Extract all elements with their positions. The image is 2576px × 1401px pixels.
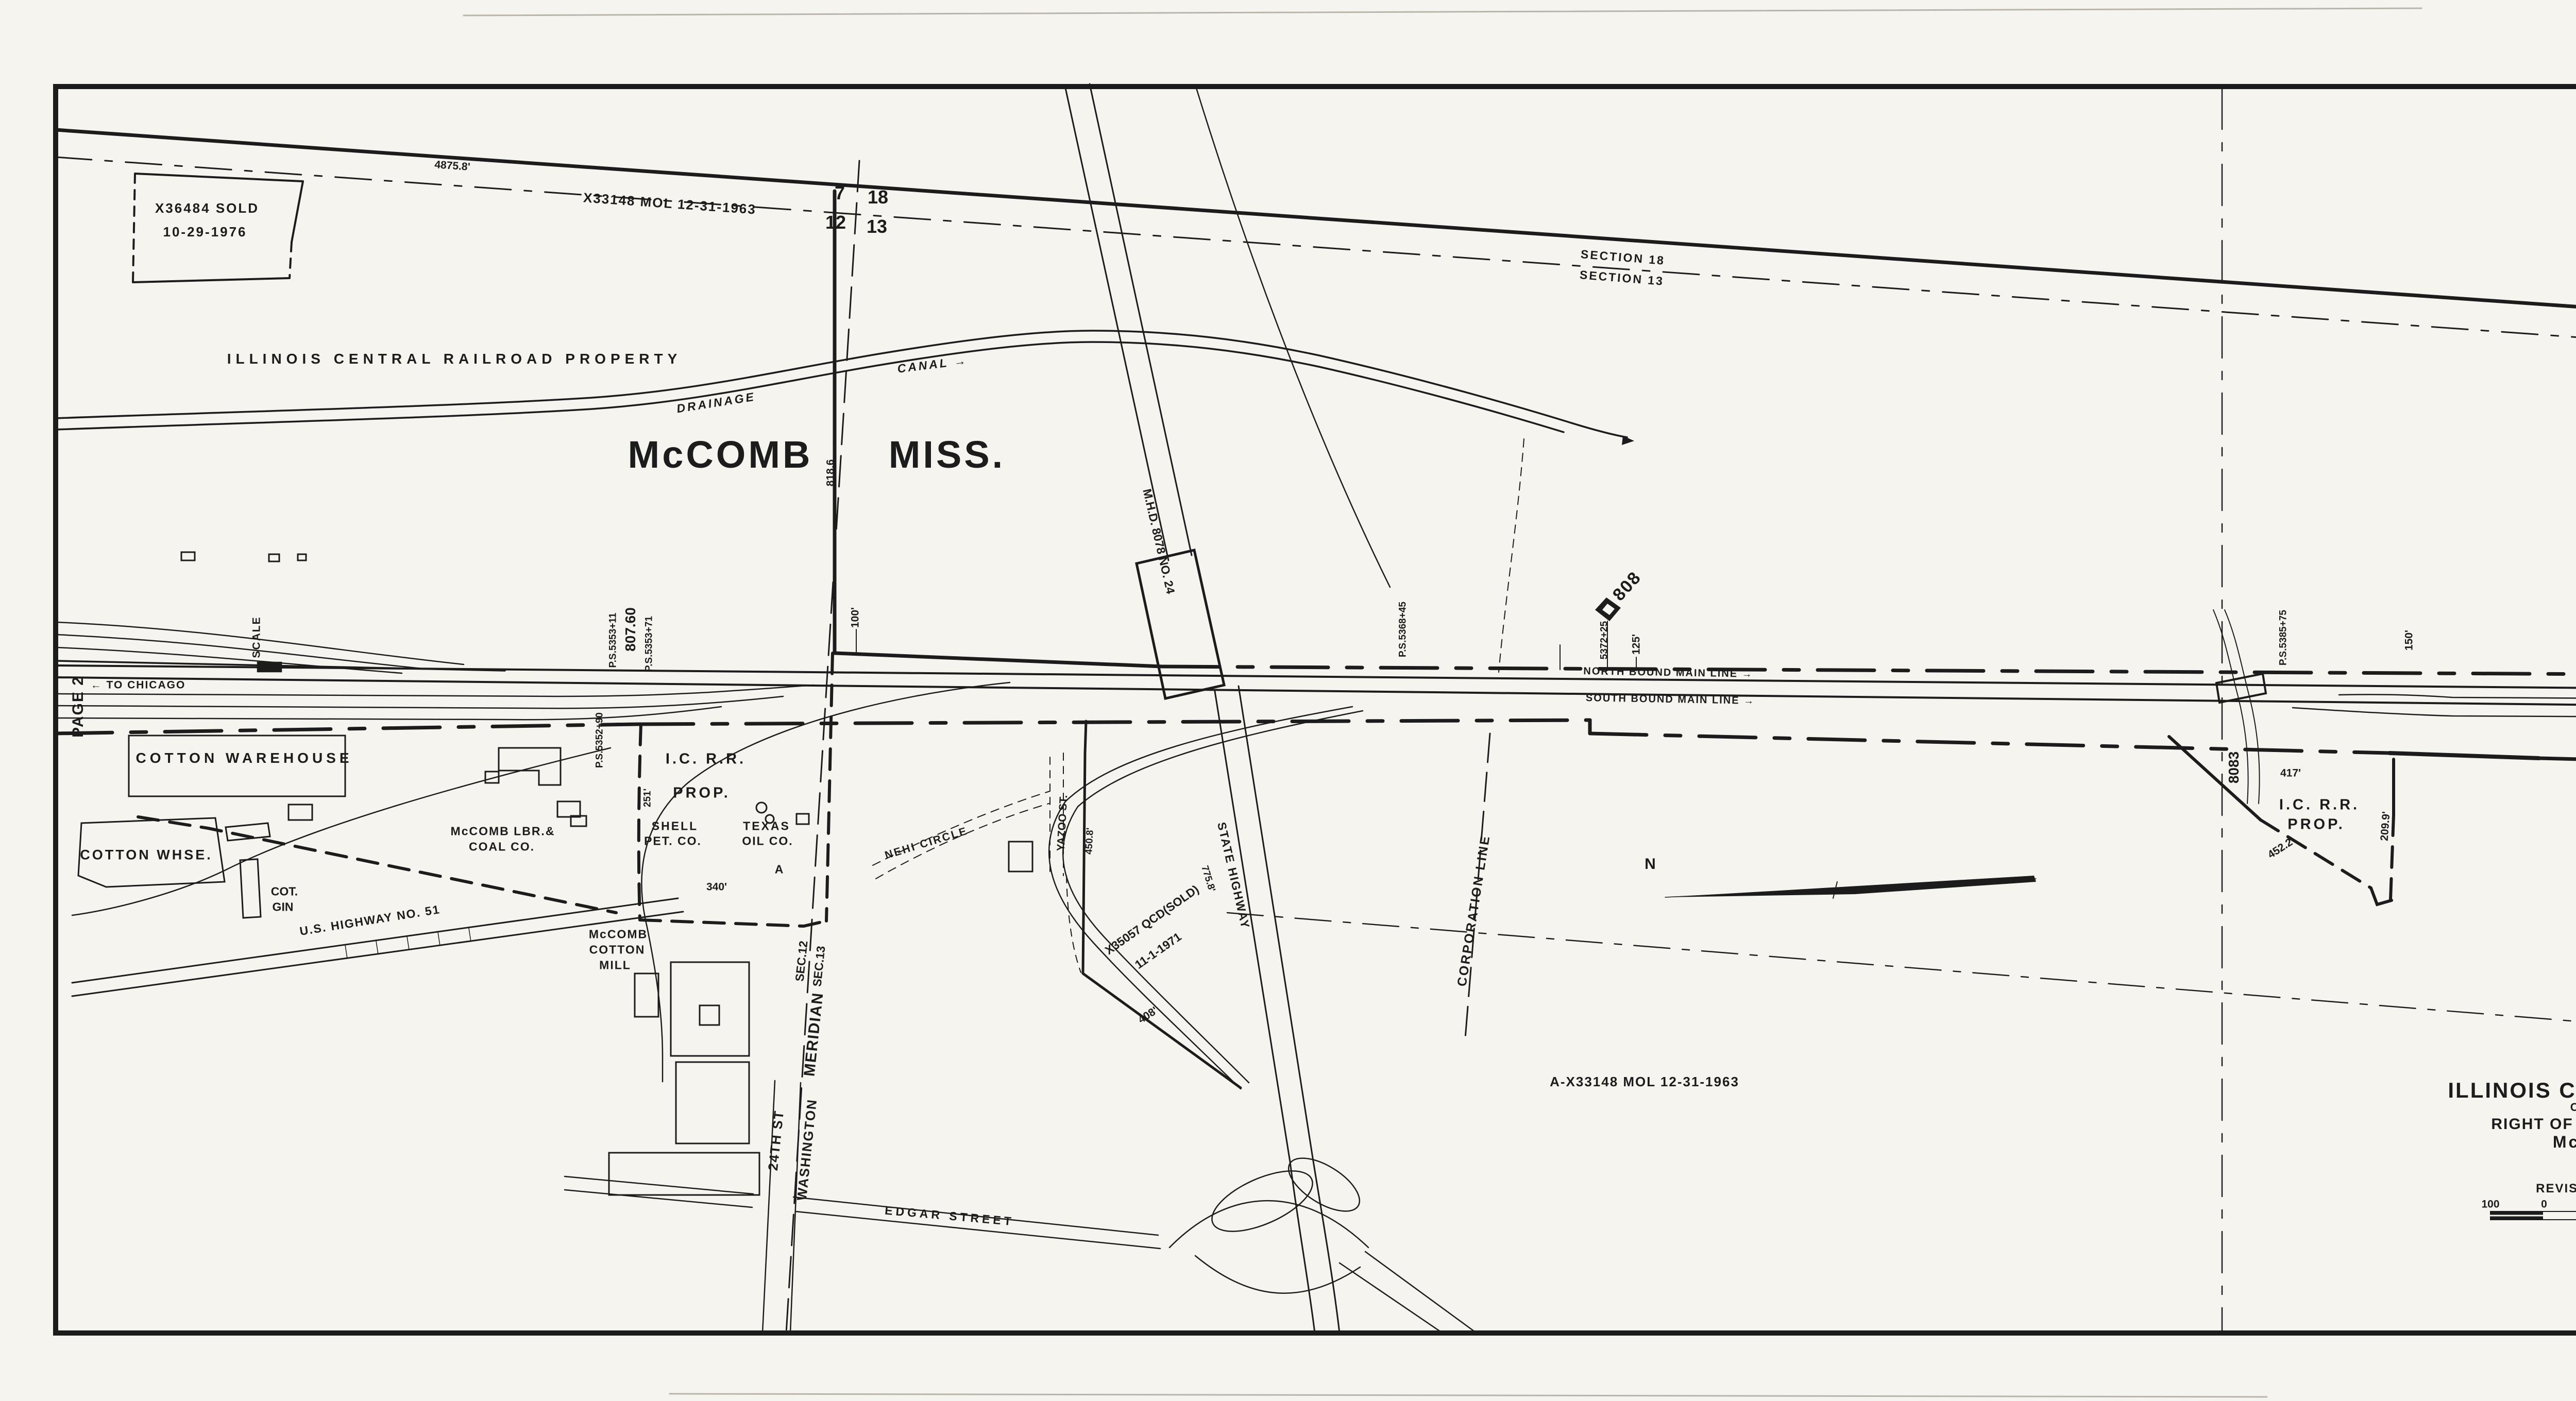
point-a: A xyxy=(775,864,784,876)
dim-125: 125' xyxy=(1631,634,1642,655)
icrr-prop-right-2: PROP. xyxy=(2287,817,2345,832)
mhd-road-label: M.H.D. 8078 NO. 24 xyxy=(1141,488,1176,595)
sec12-label: SEC.12 xyxy=(793,940,809,982)
section-corner-12: 12 xyxy=(825,213,846,232)
parcel-x35057-2: 11-1-1971 xyxy=(1133,931,1183,971)
note-x33148: X33148 MOL 12-31-1963 xyxy=(583,191,756,216)
mccomb-lbr-label-2: COAL CO. xyxy=(469,841,535,853)
section-18-label: SECTION 18 xyxy=(1580,248,1666,267)
mp-8083: 8083 xyxy=(2227,751,2241,783)
label-layer: X36484 SOLD10-29-19764875.8'X33148 MOL 1… xyxy=(0,0,2576,1401)
parcel-x35057-1: X35057 QCD(SOLD) xyxy=(1103,883,1201,957)
cot-gin-label-2: GIN xyxy=(273,901,294,913)
edge-page-2: PAGE 2 xyxy=(71,676,86,738)
icrr-prop-right-1: I.C. R.R. xyxy=(2279,798,2360,813)
dim-4875: 4875.8' xyxy=(434,159,471,173)
dim-4508: 450.8' xyxy=(1084,827,1095,855)
title-city: McCOMB MISS. xyxy=(2553,1134,2576,1150)
cotton-whse-label: COTTON WHSE. xyxy=(80,848,213,862)
street-yazoo: YAZOO ST. xyxy=(1056,795,1070,851)
section-13-label: SECTION 13 xyxy=(1579,269,1665,287)
to-chicago: ← TO CHICAGO xyxy=(91,680,186,691)
section-corner-7: 7 xyxy=(835,184,845,202)
title-row-map: RIGHT OF WAY AND TRACK MAP xyxy=(2491,1117,2576,1132)
dim-4522: 452.2' xyxy=(2266,835,2297,861)
north-letter: N xyxy=(1645,857,1656,872)
north-bound-main: NORTH BOUND MAIN LINE → xyxy=(1583,666,1753,679)
street-24th: 24TH ST xyxy=(766,1109,786,1171)
street-edgar: EDGAR STREET xyxy=(884,1205,1014,1228)
mp-80760: 807.60 xyxy=(623,607,638,652)
cotton-mill-label-3: MILL xyxy=(599,960,631,971)
texas-label-2: OIL CO. xyxy=(742,835,793,847)
dim-7758: 775.8' xyxy=(1199,864,1216,893)
cotton-warehouse-label: COTTON WAREHOUSE xyxy=(135,751,352,765)
cotton-mill-label-1: McCOMB xyxy=(589,929,648,941)
scale-tick-0: 0 xyxy=(2541,1199,2547,1210)
parcel-x36484-line1: X36484 SOLD xyxy=(155,201,259,215)
sta-ps5352-90: P.S.5352+90 xyxy=(595,712,605,768)
city-name: McCOMB xyxy=(628,436,813,474)
sta-ps5353-71: P.S.5353+71 xyxy=(645,616,654,672)
title-railroad: ILLINOIS CENTRAL RAILROAD xyxy=(2448,1080,2576,1101)
sta-ps5368-45: P.S.5368+45 xyxy=(1398,602,1408,657)
drainage-label: DRAINAGE xyxy=(676,391,756,415)
icrr-prop-left-2: PROP. xyxy=(673,786,731,801)
shell-label-1: SHELL xyxy=(652,821,698,832)
texas-label-1: TEXAS xyxy=(743,821,790,832)
state-highway-label: STATE HIGHWAY xyxy=(1215,821,1251,930)
south-bound-main: SOUTH BOUND MAIN LINE → xyxy=(1586,693,1755,706)
note-a-x33148: A-X33148 MOL 12-31-1963 xyxy=(1550,1075,1739,1088)
icrr-prop-left-1: I.C. R.R. xyxy=(666,752,746,767)
meridian-label: MERIDIAN xyxy=(802,992,826,1078)
cot-gin-label-1: COT. xyxy=(271,886,298,898)
dim-408: 408' xyxy=(1136,1005,1159,1025)
nehi-circle-label: NEHI CIRCLE xyxy=(884,826,969,861)
milepost-808: 808 xyxy=(1609,568,1644,604)
track-scale-label: SCALE xyxy=(251,616,262,658)
dim-2099: 209.9' xyxy=(2379,811,2392,842)
shell-label-2: PET. CO. xyxy=(644,835,702,847)
us-highway-51: U.S. HIGHWAY NO. 51 xyxy=(299,903,441,937)
sta-5372-25: 5372+25 xyxy=(1600,621,1609,660)
v-8186: 818.6 xyxy=(825,459,836,487)
icrr-property-note: ILLINOIS CENTRAL RAILROAD PROPERTY xyxy=(227,352,682,366)
scale-tick-100l: 100 xyxy=(2481,1199,2499,1210)
canal-label: CANAL → xyxy=(896,354,968,375)
state-name: MISS. xyxy=(889,436,1005,474)
parcel-x36484-line2: 10-29-1976 xyxy=(163,225,247,238)
title-revised: REVISED TO JUNE 30, 1948 xyxy=(2536,1183,2576,1195)
corporation-line-label: CORPORATION LINE xyxy=(1455,834,1492,987)
section-corner-13: 13 xyxy=(867,217,887,236)
map-sheet: X36484 SOLD10-29-19764875.8'X33148 MOL 1… xyxy=(0,0,2576,1401)
mccomb-lbr-label-1: McCOMB LBR.& xyxy=(451,826,555,838)
dim-417: 417' xyxy=(2280,768,2301,779)
sec13-label: SEC.13 xyxy=(811,945,827,987)
dim-150-a: 150' xyxy=(2404,630,2415,651)
sta-ps5385-75: P.S.5385+75 xyxy=(2279,610,2289,665)
sta-ps5353-11: P.S.5353+11 xyxy=(608,613,618,668)
dim-340: 340' xyxy=(706,882,727,893)
title-cstl: C.ST.L.& N.O.R.R. xyxy=(2570,1102,2576,1113)
section-corner-18: 18 xyxy=(868,188,888,207)
cotton-mill-label-2: COTTON xyxy=(589,944,646,956)
street-washington: WASHINGTON xyxy=(795,1098,819,1201)
dim-100-a: 100' xyxy=(850,607,861,628)
dim-251: 251' xyxy=(643,789,653,807)
